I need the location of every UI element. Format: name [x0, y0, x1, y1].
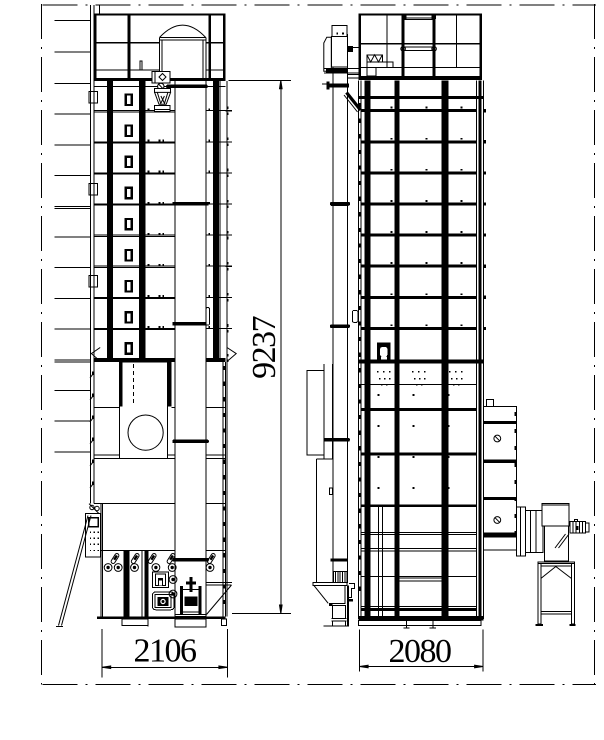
svg-text:9237: 9237 — [246, 315, 283, 379]
svg-text:2106: 2106 — [134, 633, 197, 670]
svg-text:2080: 2080 — [389, 633, 452, 670]
